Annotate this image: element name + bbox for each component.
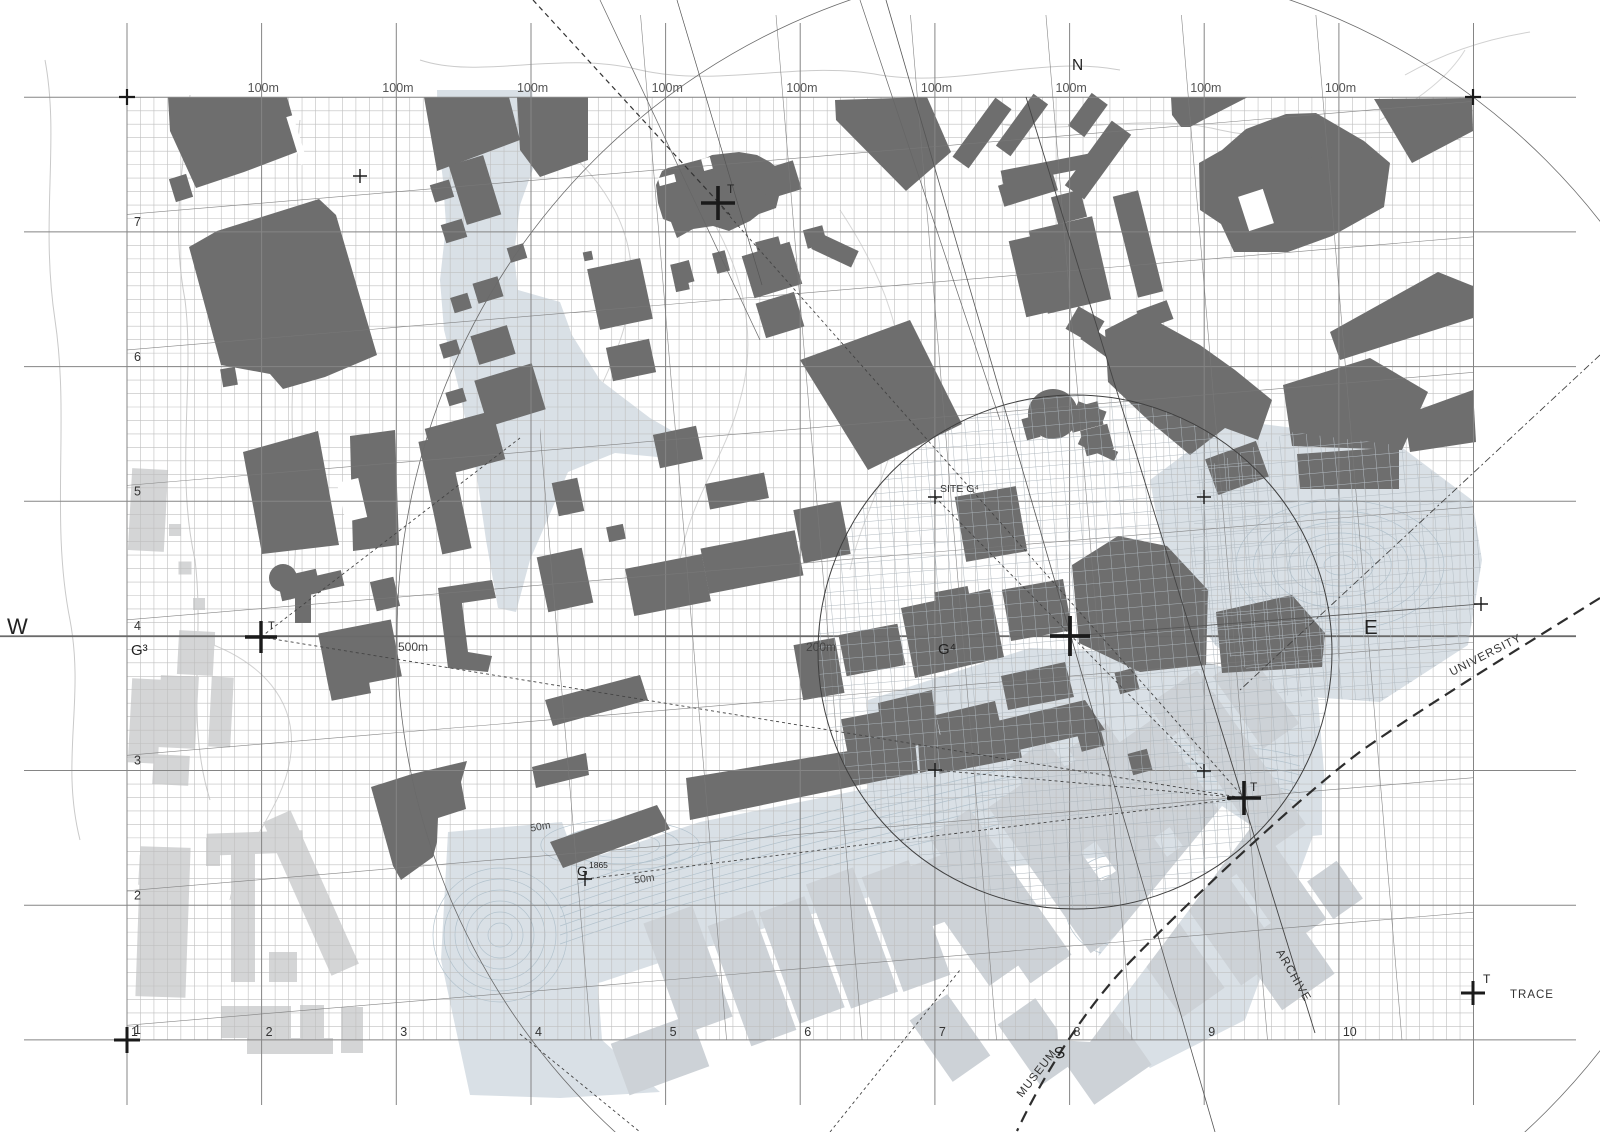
svg-text:4: 4: [134, 619, 141, 633]
svg-text:T: T: [727, 182, 735, 196]
svg-text:100m: 100m: [382, 81, 413, 95]
svg-text:G⁴: G⁴: [938, 641, 956, 658]
svg-text:7: 7: [134, 215, 141, 229]
svg-text:4: 4: [535, 1025, 542, 1039]
svg-text:3: 3: [400, 1025, 407, 1039]
svg-text:W: W: [7, 614, 28, 639]
svg-text:200m: 200m: [806, 640, 836, 654]
svg-text:6: 6: [804, 1025, 811, 1039]
svg-text:G: G: [577, 863, 588, 879]
svg-text:9: 9: [1208, 1025, 1215, 1039]
svg-text:10: 10: [1343, 1025, 1357, 1039]
svg-text:1: 1: [131, 1025, 138, 1039]
svg-text:E: E: [1364, 616, 1378, 639]
svg-text:T: T: [268, 620, 275, 632]
svg-text:8: 8: [1074, 1025, 1081, 1039]
svg-text:100m: 100m: [1190, 81, 1221, 95]
svg-text:SITE G⁴: SITE G⁴: [940, 483, 979, 495]
svg-text:7: 7: [939, 1025, 946, 1039]
svg-text:6: 6: [134, 350, 141, 364]
svg-text:TRACE: TRACE: [1510, 989, 1554, 1001]
svg-text:1865: 1865: [589, 860, 608, 870]
svg-text:500m: 500m: [398, 640, 428, 654]
svg-text:N: N: [1072, 57, 1083, 74]
svg-text:5: 5: [670, 1025, 677, 1039]
svg-text:3: 3: [134, 754, 141, 768]
svg-text:5: 5: [134, 484, 141, 498]
svg-text:G³: G³: [131, 642, 148, 659]
svg-text:100m: 100m: [248, 81, 279, 95]
svg-text:100m: 100m: [1325, 81, 1356, 95]
svg-text:100m: 100m: [1056, 81, 1087, 95]
svg-text:T: T: [1483, 972, 1491, 986]
svg-text:100m: 100m: [921, 81, 952, 95]
svg-text:100m: 100m: [652, 81, 683, 95]
svg-text:100m: 100m: [517, 81, 548, 95]
svg-text:2: 2: [266, 1025, 273, 1039]
svg-text:2: 2: [134, 888, 141, 902]
svg-text:100m: 100m: [786, 81, 817, 95]
svg-text:T: T: [1250, 780, 1258, 794]
